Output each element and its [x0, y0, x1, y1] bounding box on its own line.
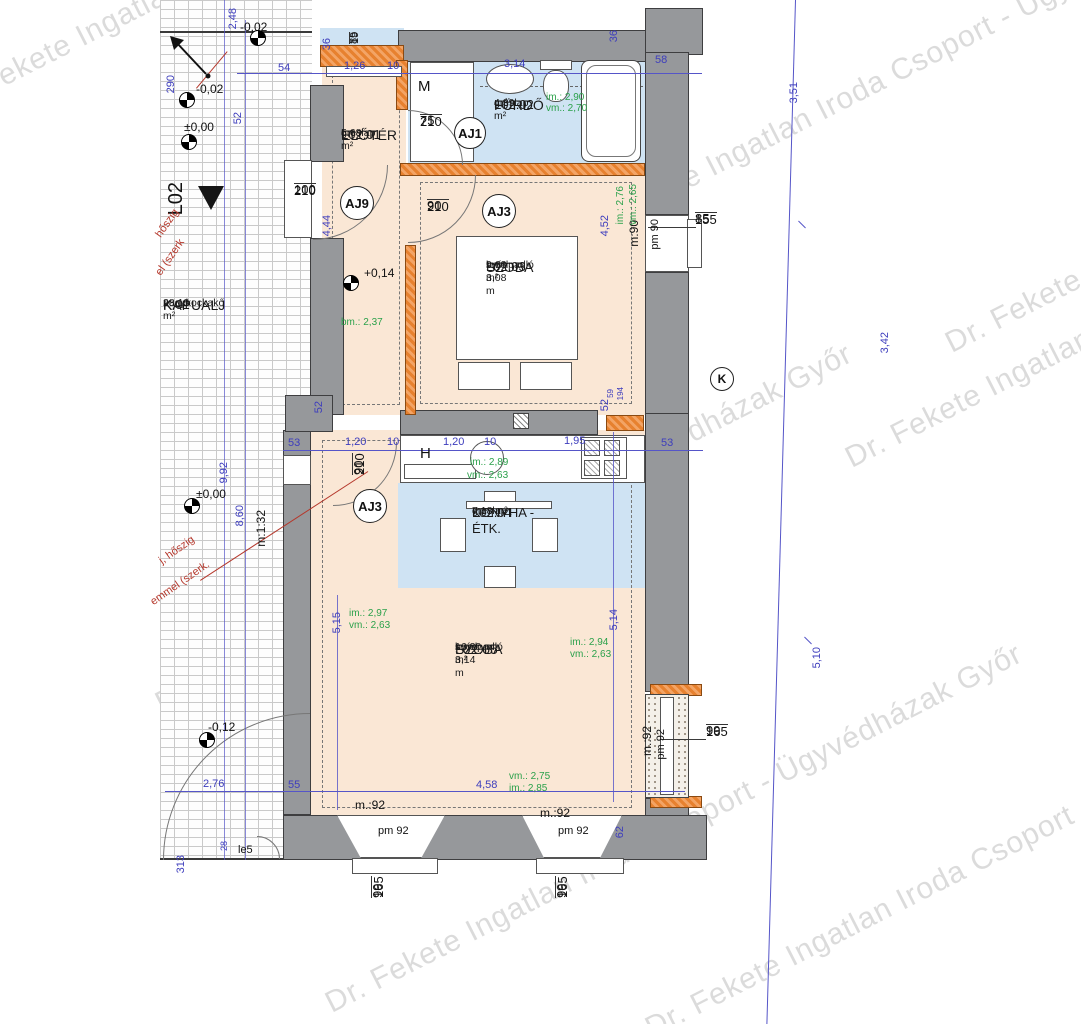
level-marker-icon: [184, 498, 200, 514]
level-marker-icon: [343, 275, 359, 291]
level-marker-layer: [0, 0, 1081, 1024]
level-marker-icon: [199, 732, 215, 748]
level-marker-icon: [179, 92, 195, 108]
level-marker-icon: [181, 134, 197, 150]
level-marker-icon: [250, 30, 266, 46]
floor-plan-canvas: Dr. Fekete Ingatlan Iroda Csoport - Ügyv…: [0, 0, 1081, 1024]
